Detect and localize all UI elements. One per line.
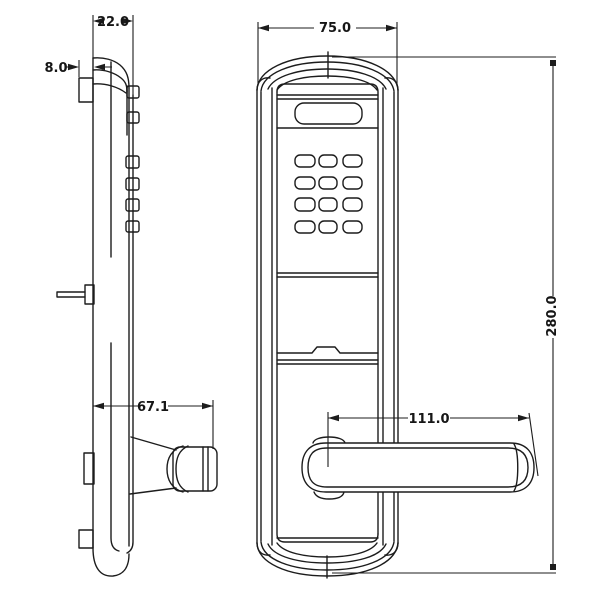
dim-label-280: 280.0 [545,295,560,336]
arrow-left-icon [93,403,104,409]
front-view [257,52,534,578]
dim-label-22: 22.0 [97,15,129,30]
keypad-button [343,221,362,233]
lock-dimension-drawing: 22.0 8.0 75.0 280.0 [0,0,600,600]
arrow-left-icon [328,415,339,421]
arrow-left-icon [258,25,269,31]
arrow-right-icon [68,64,79,70]
handle-lever [302,443,534,492]
keypad [295,155,362,233]
bottom-mounting-lug [79,530,93,548]
front-top-arch [257,52,398,91]
keypad-button [319,155,337,167]
dim-label-75: 75.0 [319,21,351,36]
dimension-faceplate-height: 280.0 [332,57,560,573]
arrow-right-icon [518,415,529,421]
top-mounting-lug [79,78,93,102]
handle-hub-top [313,437,345,443]
spindle-shaft [57,285,94,304]
keypad-button [343,198,362,211]
keypad-button [319,221,337,233]
arrow-dot-icon [550,60,556,66]
keypad-button [319,177,337,189]
side-faceplate-outer-line [127,95,133,553]
keypad-button [343,177,362,189]
keypad-section-divider [277,273,378,277]
side-handle [130,437,217,494]
mid-divider-bump [277,347,378,353]
side-view [57,58,217,576]
dim-label-67: 67.1 [137,400,169,415]
front-handle [302,437,534,499]
side-bottom-curve [93,548,129,576]
keypad-button [295,177,315,189]
dimension-body-thickness: 22.0 [93,15,133,95]
keypad-button [319,198,337,211]
keypad-button [295,155,315,167]
side-inner-line-lower [111,343,119,551]
keypad-button [295,198,315,211]
arrow-dot-icon [550,564,556,570]
dim-label-111: 111.0 [408,412,449,427]
display-window [295,103,362,124]
technical-drawing-page: 22.0 8.0 75.0 280.0 [0,0,600,600]
handle-hub-bottom [314,492,344,499]
dimension-edge-offset: 8.0 [44,60,112,77]
keypad-button [295,221,315,233]
dim-label-8: 8.0 [44,61,67,76]
arrow-right-icon [386,25,397,31]
arrow-right-icon [202,403,213,409]
keypad-button [343,155,362,167]
